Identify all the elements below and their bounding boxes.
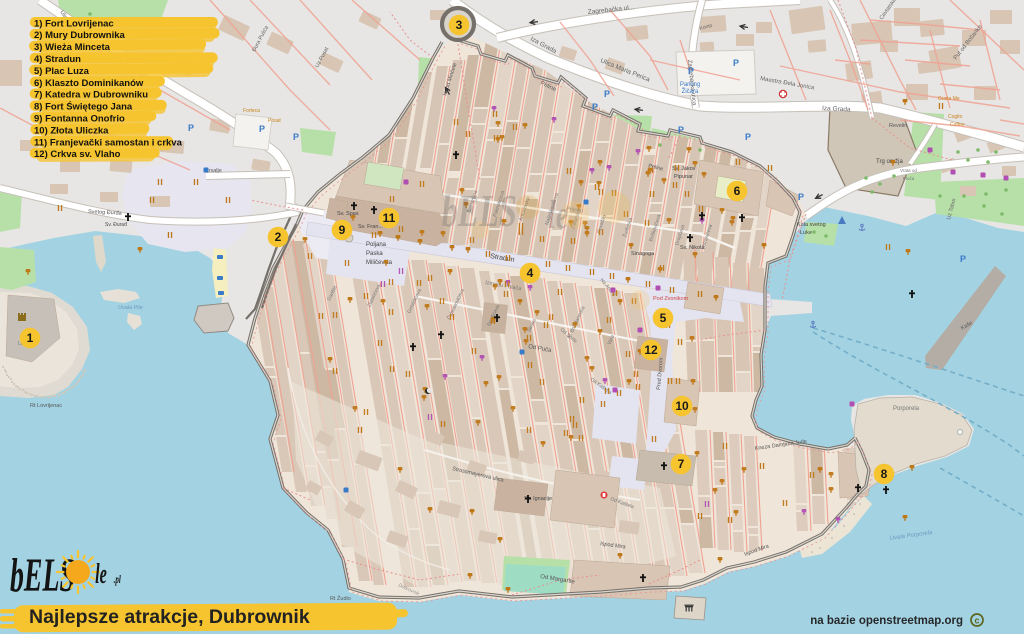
svg-text:bELS: bELS: [442, 185, 517, 236]
svg-text:12: 12: [644, 343, 658, 357]
svg-text:Rt Lovrijenac: Rt Lovrijenac: [30, 403, 62, 409]
svg-text:Forteca: Forteca: [243, 108, 260, 114]
svg-text:Cogito: Cogito: [948, 114, 963, 120]
svg-text:Kula svetog: Kula svetog: [797, 222, 826, 228]
svg-text:le: le: [95, 559, 107, 590]
svg-text:Poljana: Poljana: [366, 242, 387, 248]
svg-text:Gusta Me: Gusta Me: [938, 96, 960, 102]
svg-text:bELS: bELS: [10, 549, 75, 602]
svg-text:9: 9: [339, 223, 346, 237]
svg-text:3) Wieża Minceta: 3) Wieża Minceta: [34, 42, 111, 53]
svg-text:Ploča: Ploča: [903, 176, 915, 181]
svg-text:1) Fort Lovrijenac: 1) Fort Lovrijenac: [34, 18, 114, 29]
svg-text:Rt Žudio: Rt Žudio: [330, 594, 351, 602]
svg-text:P: P: [188, 123, 194, 133]
svg-text:Miličevića: Miličevića: [366, 260, 393, 266]
svg-text:10: 10: [675, 399, 689, 413]
svg-text:Sv. Đurađ: Sv. Đurađ: [105, 222, 127, 228]
svg-text:Pipunar: Pipunar: [674, 174, 693, 180]
svg-text:Vrata od: Vrata od: [900, 168, 917, 173]
svg-text:5) Plac Luza: 5) Plac Luza: [34, 66, 90, 77]
svg-text:1: 1: [27, 331, 34, 345]
svg-text:P: P: [733, 58, 739, 68]
svg-text:12) Crkva sv. Vlaho: 12) Crkva sv. Vlaho: [34, 149, 121, 160]
svg-text:Trg oružja: Trg oružja: [876, 159, 903, 165]
svg-text:P: P: [745, 132, 751, 142]
svg-text:Paska: Paska: [366, 251, 383, 257]
svg-text:Sv. Fran...: Sv. Fran...: [358, 224, 383, 230]
svg-text:Porporela: Porporela: [893, 406, 920, 412]
svg-text:9) Fontanna Onofrio: 9) Fontanna Onofrio: [34, 114, 125, 125]
svg-text:11) Franjevački samostan i crk: 11) Franjevački samostan i crkva: [34, 137, 183, 148]
svg-text:11: 11: [383, 211, 396, 225]
svg-text:6: 6: [734, 184, 741, 198]
svg-text:4: 4: [527, 266, 534, 280]
svg-text:2) Mury Dubrownika: 2) Mury Dubrownika: [34, 30, 126, 41]
svg-text:Sv. Spas: Sv. Spas: [337, 211, 359, 217]
svg-text:10) Złota Uliczka: 10) Złota Uliczka: [34, 125, 109, 136]
svg-text:Posat: Posat: [268, 118, 281, 124]
svg-text:Pod Zvonikom: Pod Zvonikom: [653, 296, 689, 302]
svg-text:Parking: Parking: [680, 82, 700, 88]
svg-text:5: 5: [660, 311, 667, 325]
svg-text:Žičara: Žičara: [682, 87, 699, 95]
svg-text:P: P: [293, 132, 299, 142]
svg-text:7) Katedra w Dubrowniku: 7) Katedra w Dubrowniku: [34, 90, 148, 101]
svg-text:3: 3: [456, 18, 463, 32]
svg-text:2: 2: [275, 230, 282, 244]
svg-text:7: 7: [678, 457, 685, 471]
svg-text:P: P: [592, 102, 598, 112]
svg-text:Uvala Pile: Uvala Pile: [118, 305, 143, 311]
svg-text:Sinagoga: Sinagoga: [631, 251, 655, 257]
svg-text:P: P: [604, 89, 610, 99]
svg-text:8) Fort Świętego Jana: 8) Fort Świętego Jana: [34, 101, 133, 113]
svg-text:.pl: .pl: [114, 573, 121, 586]
svg-text:P: P: [678, 125, 684, 135]
svg-text:P: P: [960, 254, 966, 264]
svg-text:Najlepsze atrakcje, Dubrownik: Najlepsze atrakcje, Dubrownik: [29, 606, 310, 628]
svg-text:na bazie openstreetmap.org: na bazie openstreetmap.org: [810, 615, 963, 627]
svg-text:6) Klaszto Dominikanów: 6) Klaszto Dominikanów: [34, 78, 144, 89]
svg-text:P: P: [259, 124, 265, 134]
svg-text:8: 8: [881, 467, 888, 481]
svg-text:4) Stradun: 4) Stradun: [34, 54, 81, 65]
svg-text:c: c: [974, 616, 979, 626]
svg-text:P: P: [798, 192, 804, 202]
svg-text:le: le: [548, 193, 568, 237]
svg-text:Luke: Luke: [800, 230, 812, 236]
svg-text:Coffee: Coffee: [950, 122, 965, 128]
svg-text:Revelin: Revelin: [889, 123, 907, 129]
svg-text:P: P: [688, 66, 694, 76]
